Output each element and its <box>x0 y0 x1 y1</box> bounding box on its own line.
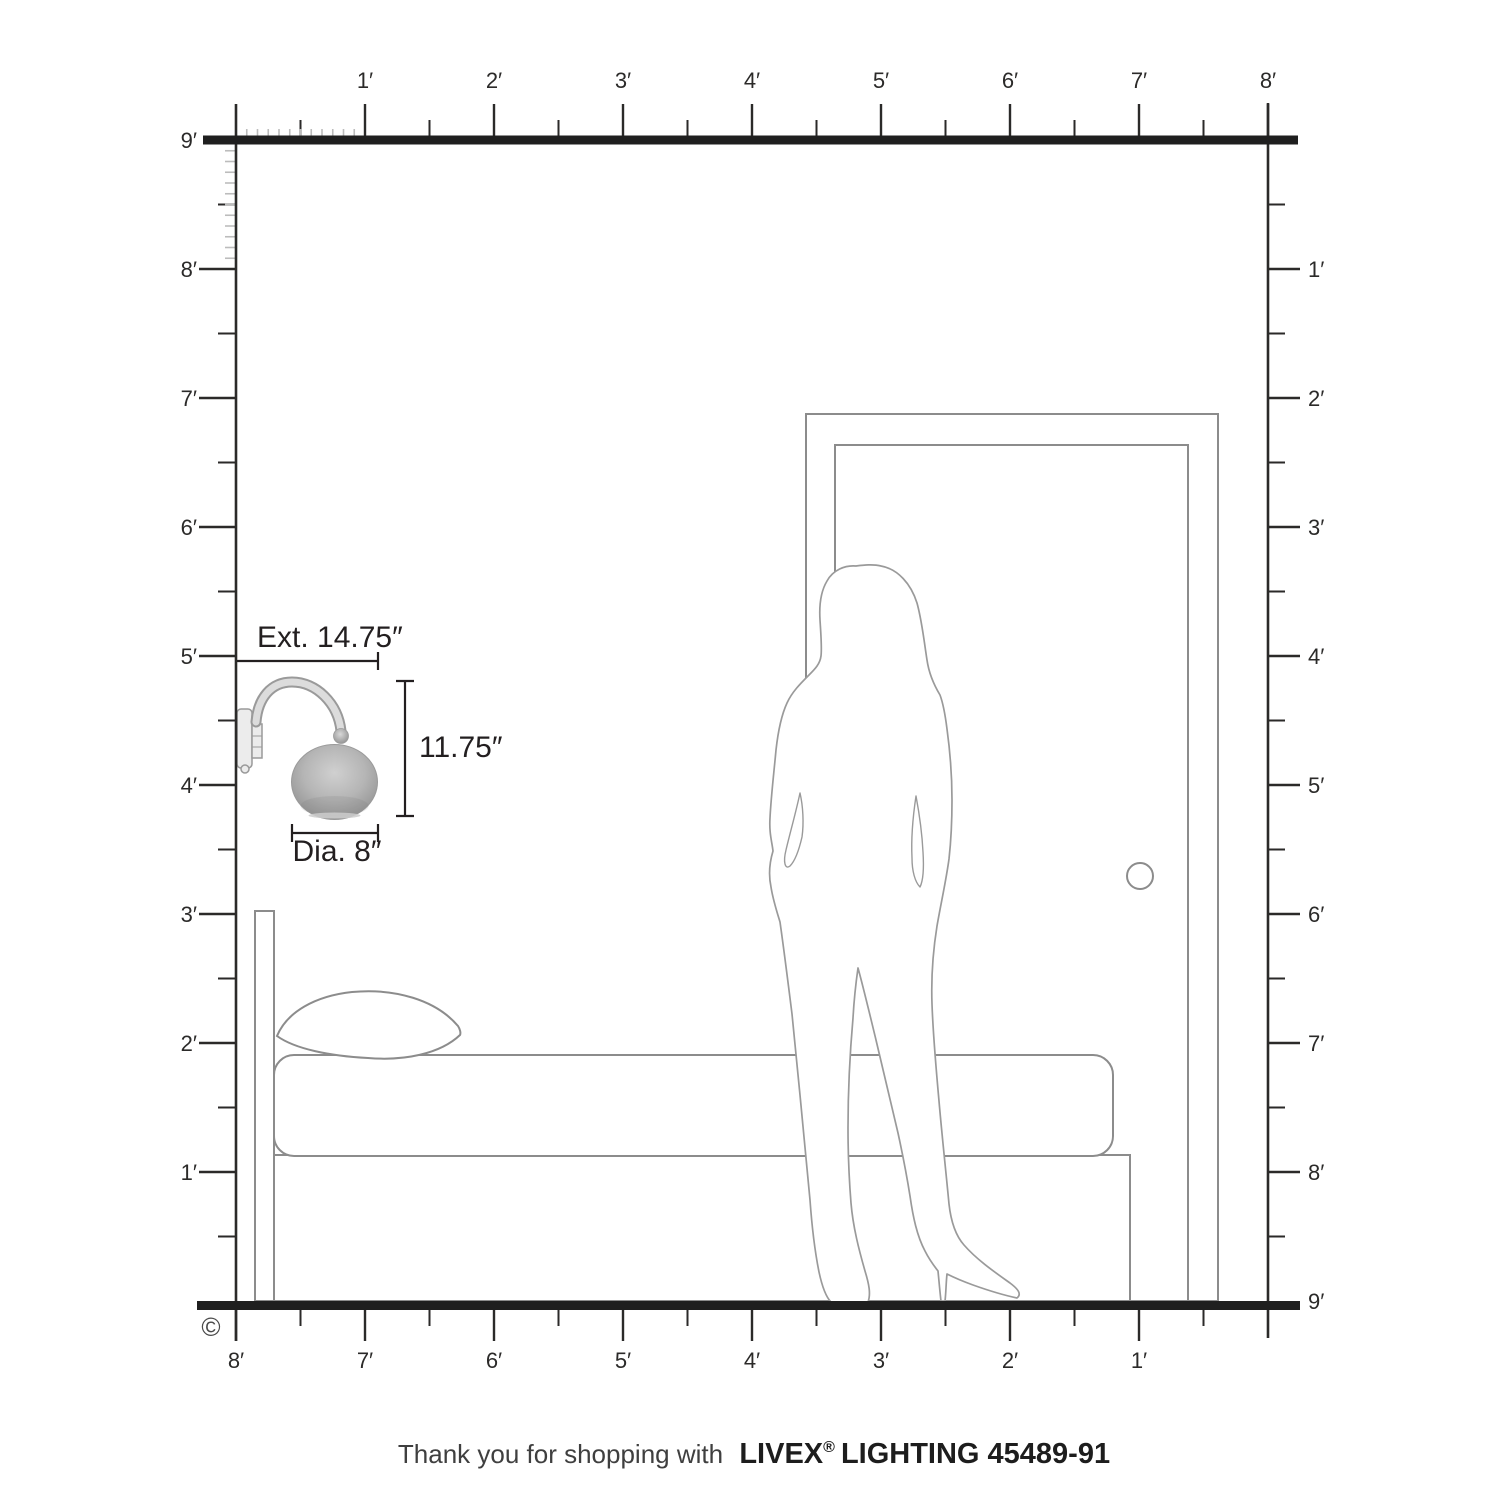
ruler-bottom: 8′7′6′5′4′3′2′1′ <box>228 1310 1204 1373</box>
ruler-label: 2′ <box>1308 386 1324 411</box>
footer-product-code: LIGHTING 45489-91 <box>841 1438 1110 1470</box>
ruler-label: 2′ <box>1002 1348 1018 1373</box>
ruler-label: 9′ <box>181 128 197 153</box>
ruler-label: 7′ <box>357 1348 373 1373</box>
ruler-label: 6′ <box>1308 902 1324 927</box>
ruler-label: 1′ <box>357 68 373 93</box>
ruler-label: 5′ <box>873 68 889 93</box>
ruler-label: 7′ <box>181 386 197 411</box>
ruler-label: 6′ <box>486 1348 502 1373</box>
ruler-left: 9′8′7′6′5′4′3′2′1′ <box>181 128 236 1237</box>
sconce-backplate <box>237 709 252 768</box>
diagram-canvas: Ext. 14.75″ 11.75″ Dia. 8″ 1′2′3′4′5′6′7… <box>0 0 1500 1500</box>
ruler-label: 8′ <box>1260 68 1276 93</box>
ruler-label: 1′ <box>1308 257 1324 282</box>
ruler-label: 6′ <box>1002 68 1018 93</box>
floor-line <box>197 1301 1300 1310</box>
ruler-label: 3′ <box>615 68 631 93</box>
ruler-label: 5′ <box>615 1348 631 1373</box>
sconce-joint <box>334 729 349 744</box>
ruler-label: 8′ <box>1308 1160 1324 1185</box>
ruler-label: 2′ <box>486 68 502 93</box>
footer-text: Thank you for shopping with LIVEX®LIGHTI… <box>398 1438 1110 1470</box>
ruler-label: 8′ <box>181 257 197 282</box>
copyright-symbol: © <box>201 1312 220 1342</box>
ruler-label: 6′ <box>181 515 197 540</box>
height-dim-label: 11.75″ <box>419 731 503 764</box>
ruler-label: 4′ <box>1308 644 1324 669</box>
dimension-diagram-page: Ext. 14.75″ 11.75″ Dia. 8″ 1′2′3′4′5′6′7… <box>0 0 1500 1500</box>
sconce-mount-bracket <box>252 724 262 758</box>
diameter-dim-label: Dia. 8″ <box>293 835 382 868</box>
ruler-label: 1′ <box>1131 1348 1147 1373</box>
mattress <box>274 1055 1113 1156</box>
ruler-label: 8′ <box>228 1348 244 1373</box>
ruler-label: 5′ <box>1308 773 1324 798</box>
ruler-label: 4′ <box>744 68 760 93</box>
ruler-label: 3′ <box>873 1348 889 1373</box>
ruler-label: 7′ <box>1131 68 1147 93</box>
extension-dim-label: Ext. 14.75″ <box>257 621 403 654</box>
footer-brand: LIVEX <box>739 1438 823 1470</box>
footer-prefix: Thank you for shopping with <box>398 1439 723 1469</box>
door-knob <box>1127 863 1153 889</box>
sconce-finial <box>241 765 249 773</box>
ruler-label: 7′ <box>1308 1031 1324 1056</box>
ruler-label: 3′ <box>1308 515 1324 540</box>
ruler-top: 1′2′3′4′5′6′7′8′ <box>247 68 1276 140</box>
sconce-shade-rim <box>309 813 361 819</box>
pillow <box>277 991 460 1058</box>
ceiling-line <box>203 136 1298 145</box>
ruler-label: 5′ <box>181 644 197 669</box>
headboard <box>255 911 274 1301</box>
ruler-label: 2′ <box>181 1031 197 1056</box>
wall-sconce <box>237 682 378 820</box>
dimension-annotations: Ext. 14.75″ 11.75″ Dia. 8″ <box>237 621 503 868</box>
ruler-label: 3′ <box>181 902 197 927</box>
ruler-right: 1′2′3′4′5′6′7′8′9′ <box>1268 205 1324 1315</box>
footer-registered-mark: ® <box>823 1439 835 1456</box>
ruler-label: 4′ <box>744 1348 760 1373</box>
ruler-label: 9′ <box>1308 1289 1324 1314</box>
ruler-label: 1′ <box>181 1160 197 1185</box>
ruler-label: 4′ <box>181 773 197 798</box>
